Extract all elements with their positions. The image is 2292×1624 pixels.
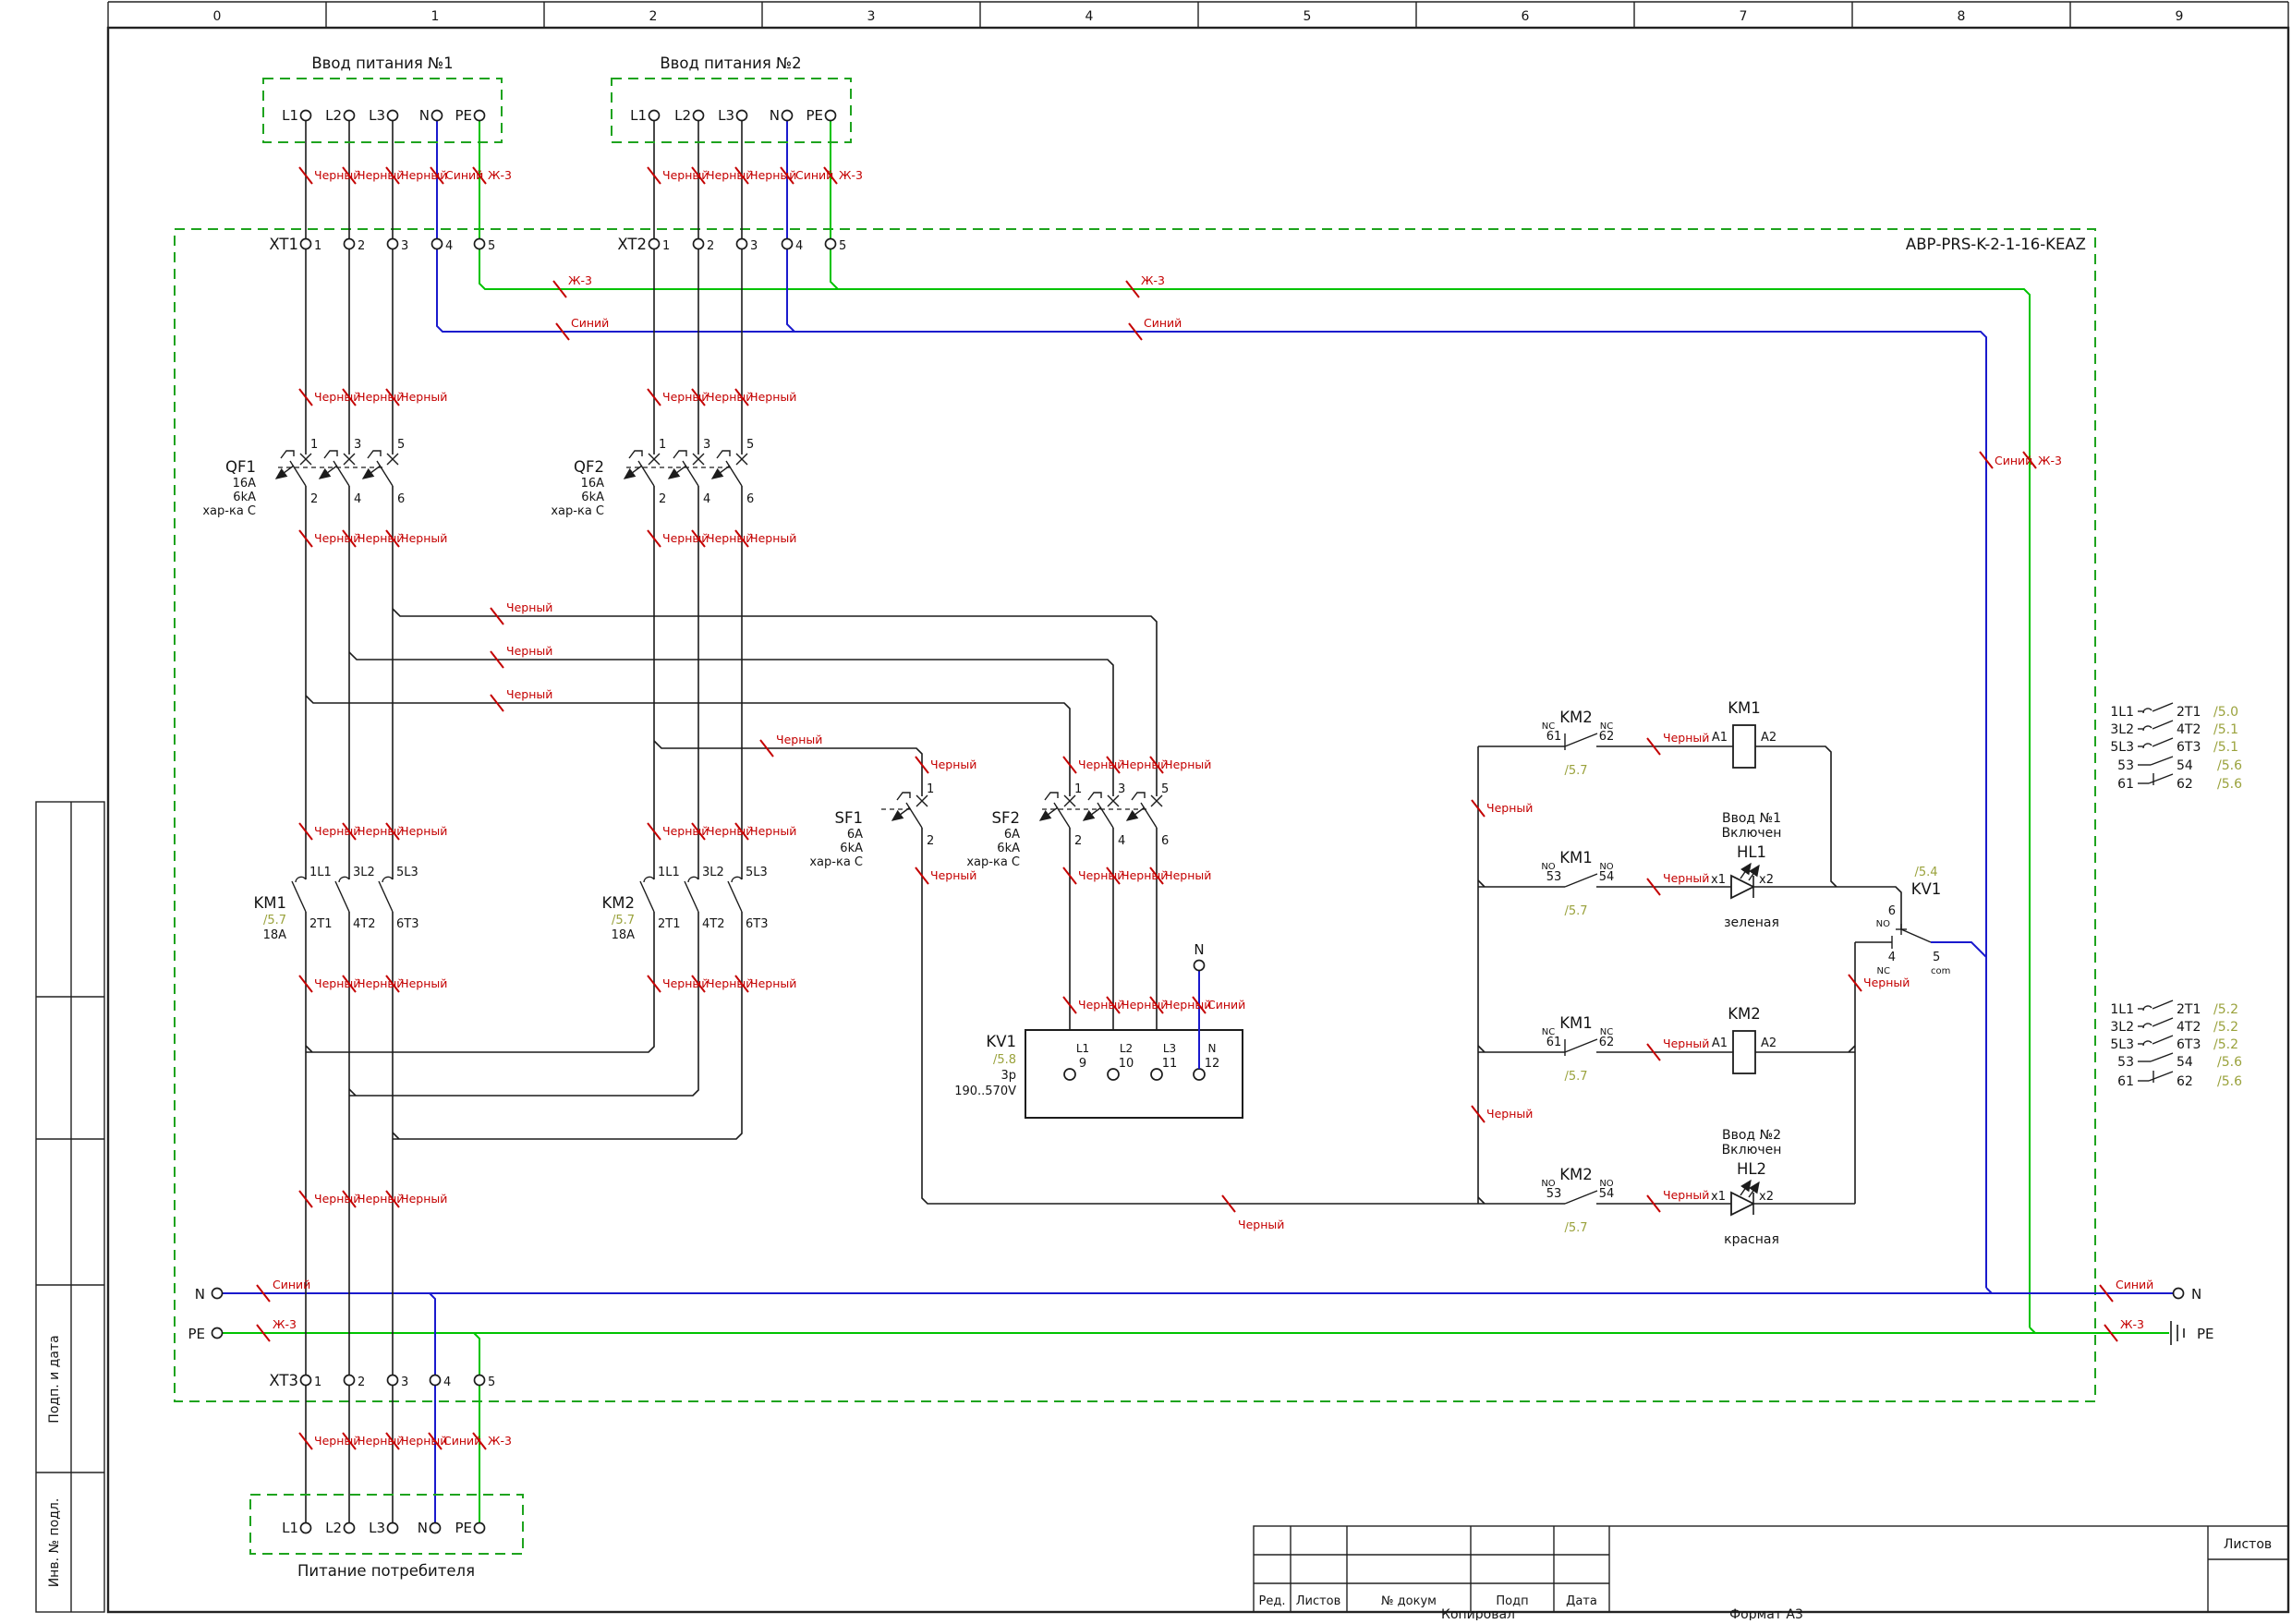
svg-text:2T1: 2T1 <box>2177 705 2201 720</box>
n-wires: N N <box>195 121 2201 1523</box>
km2-main-contacts: KM2 /5.7 18A 1L1 3L2 5L3 2T1 4T2 6T3 <box>601 866 768 942</box>
svg-text:Черный: Черный <box>1486 801 1533 815</box>
xt1-row: XT1 1 2 3 4 5 <box>269 236 495 253</box>
svg-text:5: 5 <box>746 438 754 452</box>
svg-text:/5.2: /5.2 <box>2213 1037 2238 1052</box>
svg-text:Ввод №2: Ввод №2 <box>1722 1128 1781 1143</box>
svg-text:Черный: Черный <box>506 687 552 701</box>
n-right-label: N <box>2191 1286 2201 1303</box>
svg-text:5L3: 5L3 <box>746 866 768 879</box>
sf2-label: SF2 <box>992 809 1020 827</box>
hl1-lamp: x1 x2 Ввод №1 Включен HL1 зеленая <box>1711 811 1781 930</box>
kv1-label: KV1 <box>986 1033 1016 1050</box>
svg-text:Черный: Черный <box>930 757 976 771</box>
svg-text:/5.0: /5.0 <box>2213 705 2238 720</box>
svg-text:/5.6: /5.6 <box>2217 1074 2242 1089</box>
svg-text:1: 1 <box>927 782 934 796</box>
svg-text:Синий: Синий <box>795 168 833 182</box>
svg-text:6T3: 6T3 <box>2177 1037 2201 1052</box>
svg-text:Ж-3: Ж-3 <box>2120 1317 2144 1331</box>
svg-text:Синий: Синий <box>1207 998 1245 1012</box>
consumer-l1: L1 <box>282 1520 298 1536</box>
svg-text:/5.8: /5.8 <box>993 1053 1016 1067</box>
svg-text:61: 61 <box>1546 730 1562 744</box>
svg-text:1: 1 <box>659 438 666 452</box>
svg-text:6kA: 6kA <box>840 842 863 855</box>
svg-text:2: 2 <box>1074 834 1082 848</box>
svg-text:Ж-3: Ж-3 <box>273 1317 297 1331</box>
svg-text:Черный: Черный <box>750 824 796 838</box>
svg-text:Черный: Черный <box>1663 871 1709 885</box>
consumer-l3: L3 <box>369 1520 385 1536</box>
svg-text:/5.7: /5.7 <box>1564 1070 1587 1084</box>
svg-text:4: 4 <box>354 492 361 506</box>
svg-text:KM2: KM2 <box>1559 709 1593 726</box>
svg-text:3L2: 3L2 <box>2110 1020 2134 1035</box>
svg-text:4: 4 <box>1118 834 1125 848</box>
title-block: Ред. Листов № докум Подп Дата Листов <box>1254 1526 2288 1612</box>
svg-text:Синий: Синий <box>273 1278 310 1291</box>
input1-pe: PE <box>455 107 472 124</box>
power-wires <box>306 120 1565 1523</box>
ruler-5: 5 <box>1304 9 1312 24</box>
n-left-label: N <box>195 1286 205 1303</box>
tb-col-data: Дата <box>1566 1594 1597 1608</box>
xt3-label: XT3 <box>269 1372 298 1389</box>
svg-text:Ж-3: Ж-3 <box>488 1434 512 1448</box>
km2-no-contact: KM2 NO NO 53 54 /5.7 <box>1541 1166 1614 1235</box>
wire-color-labels: Черный Черный Черный Синий Ж-3 Черный Че… <box>257 167 2153 1449</box>
svg-text:61: 61 <box>1546 1036 1562 1049</box>
svg-text:62: 62 <box>2177 777 2193 792</box>
ruler-7: 7 <box>1740 9 1748 24</box>
svg-text:/5.7: /5.7 <box>1564 764 1587 778</box>
svg-text:Синий: Синий <box>445 168 483 182</box>
svg-text:Черный: Черный <box>401 531 447 545</box>
svg-text:N: N <box>1208 1042 1217 1055</box>
svg-text:53: 53 <box>2117 758 2134 773</box>
n-left-terminal <box>212 1289 223 1299</box>
svg-text:красная: красная <box>1724 1232 1779 1247</box>
svg-text:5: 5 <box>1933 951 1940 964</box>
input2-title: Ввод питания №2 <box>660 55 801 72</box>
svg-text:Черный: Черный <box>750 976 796 990</box>
xt2-label: XT2 <box>617 236 647 253</box>
svg-text:190..570V: 190..570V <box>954 1085 1016 1098</box>
svg-text:HL1: HL1 <box>1737 843 1766 861</box>
svg-text:KM2: KM2 <box>1559 1166 1593 1183</box>
svg-text:A1: A1 <box>1712 1036 1728 1050</box>
km1-nc-contact: KM1 NC NC 61 62 /5.7 <box>1542 1014 1615 1084</box>
side-label-sign-date: Подп. и дата <box>47 1335 62 1423</box>
svg-text:x2: x2 <box>1759 1190 1774 1204</box>
schematic-canvas: 0 1 2 3 4 5 6 7 8 9 Подп. и дата Инв. № … <box>0 0 2292 1620</box>
svg-text:Черный: Черный <box>1663 1036 1709 1050</box>
tb-col-podp: Подп <box>1496 1594 1528 1608</box>
km2-xref-table: 1L12T1/5.2 3L24T2/5.2 5L36T3/5.2 5354/5.… <box>2110 1000 2242 1089</box>
km1-coil: KM1 A1 A2 <box>1712 699 1777 768</box>
svg-text:/5.6: /5.6 <box>2217 777 2242 792</box>
svg-text:/5.6: /5.6 <box>2217 1055 2242 1070</box>
svg-text:/5.2: /5.2 <box>2213 1002 2238 1017</box>
ruler-9: 9 <box>2176 9 2184 24</box>
svg-text:3: 3 <box>401 1376 408 1389</box>
consumer-l2: L2 <box>325 1520 342 1536</box>
input2-l3: L3 <box>718 107 734 124</box>
consumer-n: N <box>418 1520 428 1536</box>
svg-text:Черный: Черный <box>1165 998 1211 1012</box>
svg-text:5L3: 5L3 <box>2110 1037 2134 1052</box>
svg-text:1L1: 1L1 <box>2110 1002 2134 1017</box>
svg-text:1L1: 1L1 <box>658 866 680 879</box>
svg-text:6kA: 6kA <box>581 491 604 504</box>
kv1-box: KV1 /5.8 3p 190..570V L1 9 L2 10 L3 11 N… <box>954 941 1243 1118</box>
svg-text:5: 5 <box>488 1376 495 1389</box>
svg-text:62: 62 <box>2177 1074 2193 1089</box>
svg-text:6A: 6A <box>1004 828 1020 842</box>
svg-text:1: 1 <box>1074 782 1082 796</box>
svg-text:61: 61 <box>2117 1074 2134 1089</box>
km1-main-contacts: KM1 /5.7 18A 1L1 3L2 5L3 2T1 4T2 6T3 <box>253 866 418 942</box>
svg-text:5L3: 5L3 <box>2110 740 2134 755</box>
svg-text:Черный: Черный <box>401 1192 447 1206</box>
svg-text:Черный: Черный <box>1165 868 1211 882</box>
tb-col-listov: Листов <box>1296 1594 1341 1608</box>
svg-text:KM1: KM1 <box>1728 699 1761 717</box>
svg-text:5L3: 5L3 <box>396 866 418 879</box>
ruler-6: 6 <box>1522 9 1530 24</box>
svg-text:KM1: KM1 <box>1559 849 1593 867</box>
svg-text:Ж-3: Ж-3 <box>2038 454 2062 467</box>
svg-text:6: 6 <box>397 492 405 506</box>
svg-text:2: 2 <box>310 492 318 506</box>
svg-text:2: 2 <box>707 239 714 253</box>
svg-text:5: 5 <box>488 239 495 253</box>
svg-text:1: 1 <box>314 239 321 253</box>
svg-text:Черный: Черный <box>1238 1218 1284 1231</box>
svg-text:3L2: 3L2 <box>353 866 375 879</box>
qf2-label: QF2 <box>574 458 604 476</box>
svg-text:4T2: 4T2 <box>353 917 375 931</box>
ruler-8: 8 <box>1958 9 1966 24</box>
tb-col-ndokum: № докум <box>1381 1594 1437 1608</box>
km2-coil: KM2 A1 A2 <box>1712 1005 1777 1073</box>
svg-text:53: 53 <box>2117 1055 2134 1070</box>
svg-text:Черный: Черный <box>750 531 796 545</box>
svg-text:Черный: Черный <box>506 600 552 614</box>
svg-text:HL2: HL2 <box>1737 1160 1766 1178</box>
svg-text:3p: 3p <box>1000 1069 1016 1083</box>
svg-text:6T3: 6T3 <box>2177 740 2201 755</box>
svg-text:6: 6 <box>746 492 754 506</box>
pe-right-label: PE <box>2197 1326 2214 1342</box>
svg-text:Черный: Черный <box>401 824 447 838</box>
svg-text:Черный: Черный <box>1863 976 1910 989</box>
svg-text:Синий: Синий <box>571 316 609 330</box>
ruler-3: 3 <box>867 9 876 24</box>
pe-left-label: PE <box>188 1326 205 1342</box>
svg-text:L1: L1 <box>1076 1042 1089 1055</box>
svg-text:зеленая: зеленая <box>1724 915 1779 930</box>
svg-text:1L1: 1L1 <box>309 866 332 879</box>
svg-text:/5.1: /5.1 <box>2213 740 2238 755</box>
input2-pe: PE <box>806 107 823 124</box>
km1-no-contact: KM1 NO NO 53 54 /5.7 <box>1541 849 1614 918</box>
svg-text:NO: NO <box>1876 919 1890 929</box>
svg-text:5: 5 <box>1161 782 1169 796</box>
input1-l2: L2 <box>325 107 342 124</box>
svg-text:2: 2 <box>358 239 365 253</box>
svg-text:Черный: Черный <box>401 1434 447 1448</box>
sf1-breaker: SF1 6A 6kA хар-ка C 1 2 <box>809 782 934 869</box>
svg-text:/5.7: /5.7 <box>1564 1221 1587 1235</box>
svg-text:/5.2: /5.2 <box>2213 1020 2238 1035</box>
svg-text:/5.7: /5.7 <box>263 914 286 927</box>
device-name: АВР-PRS-K-2-1-16-KEAZ <box>1906 236 2086 253</box>
consumer-box: Питание потребителя L1 L2 L3 N PE <box>250 1495 523 1580</box>
qf1-label: QF1 <box>225 458 256 476</box>
hl2-lamp: x1 x2 Ввод №2 Включен HL2 красная <box>1711 1128 1781 1247</box>
qf1-breaker: QF1 16A 6kA хар-ка C 1 3 5 2 4 6 <box>202 438 405 518</box>
svg-text:4T2: 4T2 <box>2177 722 2201 737</box>
svg-text:3: 3 <box>354 438 361 452</box>
tb-col-red: Ред. <box>1259 1594 1286 1608</box>
svg-text:Включен: Включен <box>1722 826 1782 841</box>
kv1-neutral-tap <box>1195 961 1205 971</box>
svg-text:2: 2 <box>358 1376 365 1389</box>
svg-text:KM1: KM1 <box>1559 1014 1593 1032</box>
svg-text:54: 54 <box>2177 1055 2193 1070</box>
input2-box: Ввод питания №2 L1 L2 L3 N PE <box>612 55 851 142</box>
svg-text:Ввод №1: Ввод №1 <box>1722 811 1781 826</box>
xt1-label: XT1 <box>269 236 298 253</box>
svg-text:6T3: 6T3 <box>746 917 768 931</box>
svg-text:Ж-3: Ж-3 <box>839 168 863 182</box>
svg-text:4: 4 <box>443 1376 451 1389</box>
n-right-terminal <box>2174 1289 2184 1299</box>
schematic-sheet: 0 1 2 3 4 5 6 7 8 9 Подп. и дата Инв. № … <box>0 0 2292 1620</box>
svg-text:5: 5 <box>839 239 846 253</box>
svg-text:2T1: 2T1 <box>2177 1002 2201 1017</box>
svg-text:54: 54 <box>1599 870 1615 884</box>
svg-text:54: 54 <box>2177 758 2193 773</box>
svg-text:A1: A1 <box>1712 731 1728 745</box>
kv1-changeover-contact: /5.4 KV1 6 NO 4 NC 5 com <box>1855 866 1986 976</box>
kv1-neutral-tap-label: N <box>1194 941 1204 958</box>
svg-text:Включен: Включен <box>1722 1143 1782 1157</box>
svg-text:Черный: Черный <box>1486 1107 1533 1121</box>
svg-text:6kA: 6kA <box>997 842 1020 855</box>
xt2-row: XT2 1 2 3 4 5 <box>617 236 846 253</box>
consumer-pe: PE <box>455 1520 472 1536</box>
svg-text:5: 5 <box>397 438 405 452</box>
svg-text:KM2: KM2 <box>1728 1005 1761 1023</box>
svg-text:61: 61 <box>2117 777 2134 792</box>
input1-l1: L1 <box>282 107 298 124</box>
svg-text:12: 12 <box>1205 1057 1220 1071</box>
svg-text:хар-ка C: хар-ка C <box>551 504 604 518</box>
svg-text:Черный: Черный <box>401 976 447 990</box>
svg-text:Синий: Синий <box>1144 316 1182 330</box>
sf2-breaker: SF2 6A 6kA хар-ка C 1 3 5 2 4 6 <box>966 782 1169 869</box>
svg-text:/5.7: /5.7 <box>612 914 635 927</box>
input1-title: Ввод питания №1 <box>311 55 453 72</box>
svg-text:Черный: Черный <box>1663 1188 1709 1202</box>
svg-text:хар-ка C: хар-ка C <box>202 504 256 518</box>
svg-text:2: 2 <box>927 834 934 848</box>
consumer-title: Питание потребителя <box>297 1562 475 1580</box>
input2-l1: L1 <box>630 107 647 124</box>
svg-text:Черный: Черный <box>750 390 796 404</box>
input2-n: N <box>770 107 780 124</box>
svg-text:Черный: Черный <box>1663 731 1709 745</box>
svg-text:/5.7: /5.7 <box>1564 904 1587 918</box>
km1-label: KM1 <box>253 894 286 912</box>
svg-text:x2: x2 <box>1759 873 1774 887</box>
input1-n: N <box>419 107 430 124</box>
svg-text:53: 53 <box>1546 1187 1562 1201</box>
svg-text:6T3: 6T3 <box>396 917 418 931</box>
ruler-4: 4 <box>1085 9 1094 24</box>
svg-text:10: 10 <box>1119 1057 1134 1071</box>
svg-text:3L2: 3L2 <box>702 866 724 879</box>
svg-text:62: 62 <box>1599 1036 1615 1049</box>
svg-text:18A: 18A <box>612 928 636 942</box>
svg-text:6: 6 <box>1888 904 1896 918</box>
side-label-inv-no: Инв. № подл. <box>47 1498 62 1588</box>
svg-text:4T2: 4T2 <box>702 917 724 931</box>
svg-text:1L1: 1L1 <box>2110 705 2134 720</box>
svg-text:2T1: 2T1 <box>658 917 680 931</box>
input1-l3: L3 <box>369 107 385 124</box>
svg-text:/5.4: /5.4 <box>1914 866 1937 879</box>
svg-text:3L2: 3L2 <box>2110 722 2134 737</box>
svg-text:11: 11 <box>1162 1057 1178 1071</box>
svg-text:4: 4 <box>703 492 710 506</box>
footer-copied: Копировал <box>1441 1607 1515 1620</box>
svg-text:6kA: 6kA <box>233 491 256 504</box>
svg-text:Черный: Черный <box>1165 757 1211 771</box>
pe-left-terminal <box>212 1328 223 1339</box>
footer-format: Формат А3 <box>1729 1607 1803 1620</box>
km2-nc-contact: KM2 NC NC 61 62 /5.7 <box>1542 709 1615 778</box>
svg-text:4T2: 4T2 <box>2177 1020 2201 1035</box>
ruler-1: 1 <box>431 9 440 24</box>
control-circuit: KM2 NC NC 61 62 /5.7 KM1 A1 A2 KM1 NO NO… <box>1478 699 1986 1247</box>
svg-text:com: com <box>1931 966 1950 976</box>
km2-label: KM2 <box>601 894 635 912</box>
svg-text:Черный: Черный <box>776 733 822 746</box>
svg-text:2: 2 <box>659 492 666 506</box>
km1-xref-table: 1L12T1/5.0 3L24T2/5.1 5L36T3/5.1 5354/5.… <box>2110 703 2242 792</box>
svg-text:62: 62 <box>1599 730 1615 744</box>
xt3-row: XT3 1 2 3 4 5 <box>269 1372 495 1389</box>
svg-text:4: 4 <box>795 239 803 253</box>
svg-text:Ж-3: Ж-3 <box>1141 273 1165 287</box>
svg-text:18A: 18A <box>263 928 287 942</box>
qf2-breaker: QF2 16A 6kA хар-ка C 1 3 5 2 4 6 <box>551 438 754 518</box>
svg-text:3: 3 <box>401 239 408 253</box>
svg-text:1: 1 <box>662 239 670 253</box>
svg-text:Черный: Черный <box>506 644 552 658</box>
svg-text:Синий: Синий <box>2116 1278 2153 1291</box>
svg-text:1: 1 <box>310 438 318 452</box>
sf1-label: SF1 <box>835 809 863 827</box>
svg-text:KV1: KV1 <box>1911 880 1942 898</box>
svg-text:L3: L3 <box>1163 1042 1176 1055</box>
svg-text:3: 3 <box>703 438 710 452</box>
svg-text:Черный: Черный <box>401 390 447 404</box>
svg-text:Ж-3: Ж-3 <box>568 273 592 287</box>
input2-l2: L2 <box>674 107 691 124</box>
svg-text:1: 1 <box>314 1376 321 1389</box>
svg-text:4: 4 <box>1888 951 1896 964</box>
svg-text:/5.6: /5.6 <box>2217 758 2242 773</box>
svg-text:хар-ка C: хар-ка C <box>809 855 863 869</box>
svg-text:54: 54 <box>1599 1187 1615 1201</box>
input1-box: Ввод питания №1 L1 L2 L3 N PE <box>263 55 502 142</box>
svg-text:L2: L2 <box>1120 1042 1133 1055</box>
svg-text:/5.1: /5.1 <box>2213 722 2238 737</box>
tb-sheets-label: Листов <box>2224 1537 2272 1552</box>
svg-text:16A: 16A <box>233 477 257 491</box>
svg-text:хар-ка C: хар-ка C <box>966 855 1020 869</box>
svg-text:3: 3 <box>1118 782 1125 796</box>
svg-text:6A: 6A <box>847 828 863 842</box>
svg-text:9: 9 <box>1079 1057 1086 1071</box>
ruler-0: 0 <box>213 9 222 24</box>
svg-text:3: 3 <box>750 239 758 253</box>
svg-text:x1: x1 <box>1711 873 1726 887</box>
svg-text:6: 6 <box>1161 834 1169 848</box>
svg-text:x1: x1 <box>1711 1190 1726 1204</box>
svg-text:2T1: 2T1 <box>309 917 332 931</box>
svg-text:Черный: Черный <box>930 868 976 882</box>
svg-text:53: 53 <box>1546 870 1562 884</box>
svg-text:A2: A2 <box>1761 1036 1777 1050</box>
svg-text:4: 4 <box>445 239 453 253</box>
ruler-2: 2 <box>649 9 658 24</box>
svg-text:Ж-3: Ж-3 <box>488 168 512 182</box>
svg-text:A2: A2 <box>1761 731 1777 745</box>
svg-text:16A: 16A <box>581 477 605 491</box>
